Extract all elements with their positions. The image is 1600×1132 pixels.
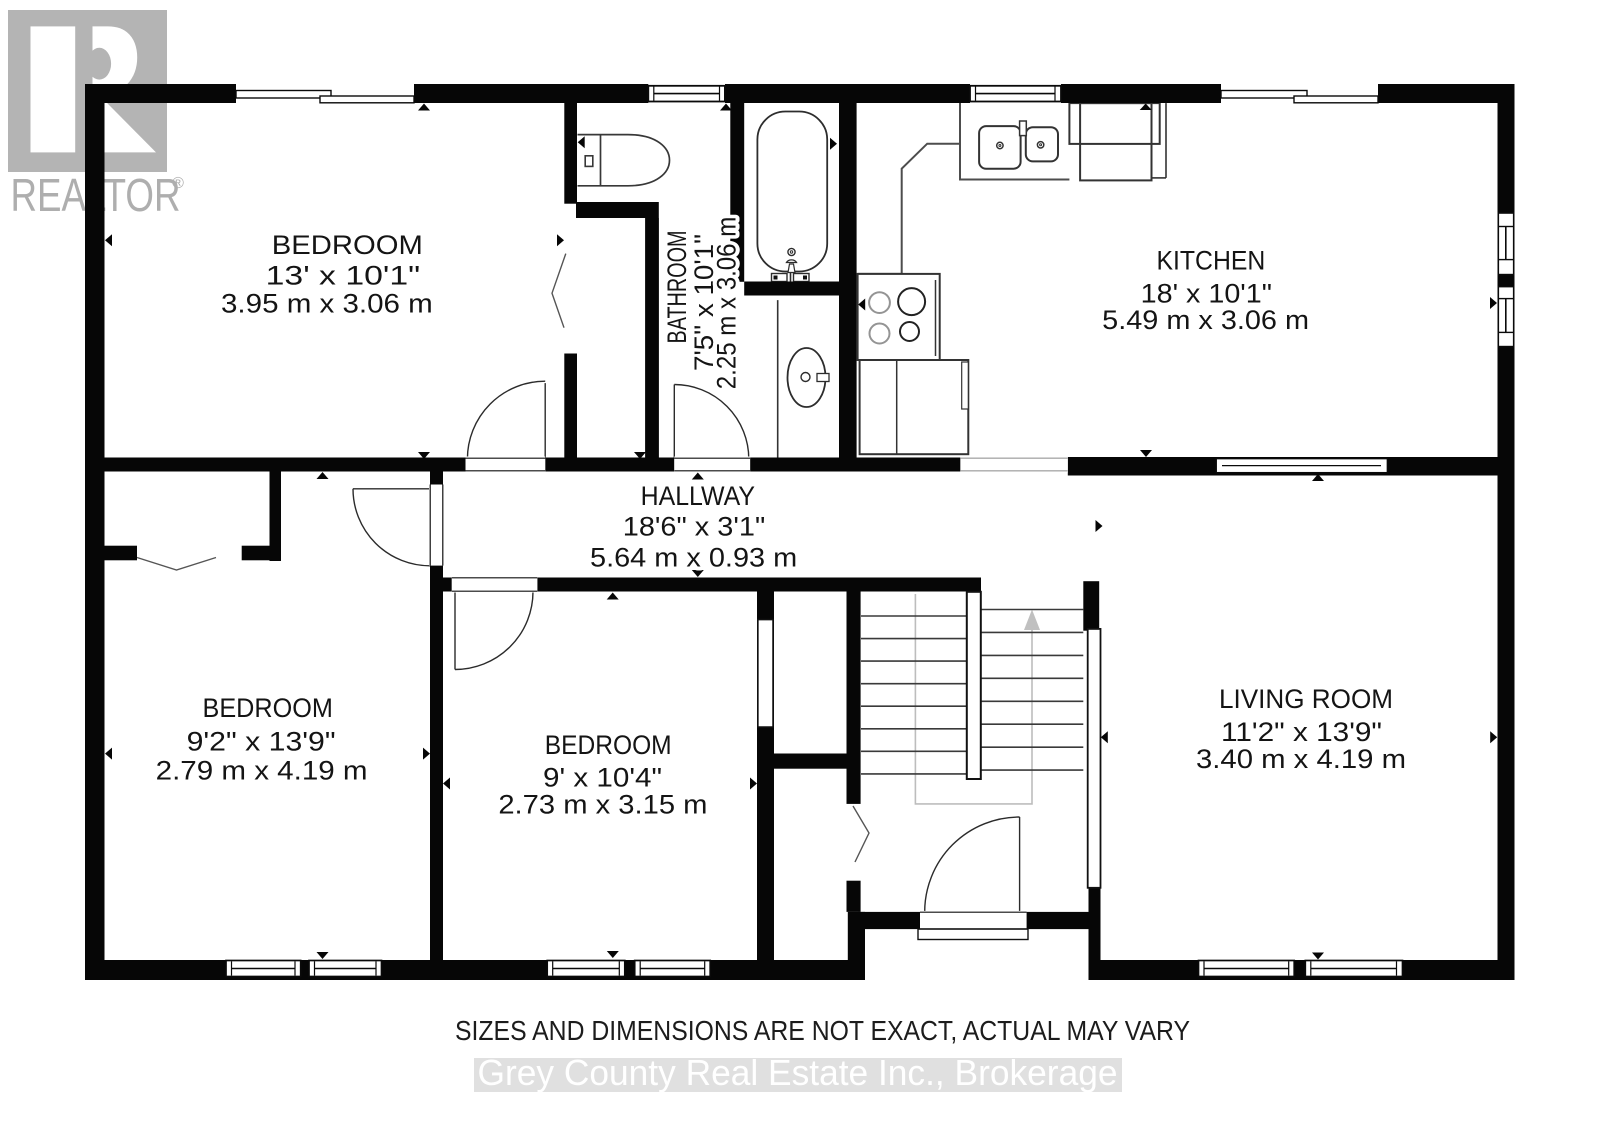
svg-text:SIZES AND DIMENSIONS ARE NOT E: SIZES AND DIMENSIONS ARE NOT EXACT, ACTU…: [455, 1015, 1190, 1046]
svg-text:18'6" x 3'1": 18'6" x 3'1": [623, 512, 766, 542]
svg-text:BEDROOM: BEDROOM: [203, 693, 333, 723]
svg-text:BATHROOM: BATHROOM: [662, 231, 692, 344]
svg-text:18' x 10'1": 18' x 10'1": [1141, 279, 1272, 309]
svg-text:BEDROOM: BEDROOM: [272, 230, 423, 260]
svg-text:5.49 m x 3.06 m: 5.49 m x 3.06 m: [1102, 305, 1309, 335]
svg-text:9' x 10'4": 9' x 10'4": [543, 763, 662, 793]
svg-text:13' x 10'1": 13' x 10'1": [266, 261, 421, 291]
svg-text:2.79 m x 4.19 m: 2.79 m x 4.19 m: [156, 756, 368, 786]
svg-text:HALLWAY: HALLWAY: [641, 481, 755, 511]
svg-text:9'2" x 13'9": 9'2" x 13'9": [187, 727, 336, 757]
svg-text:11'2" x 13'9": 11'2" x 13'9": [1221, 717, 1382, 747]
svg-text:LIVING ROOM: LIVING ROOM: [1219, 684, 1393, 714]
svg-text:2.25 m x 3.06 m: 2.25 m x 3.06 m: [711, 217, 741, 390]
svg-text:Grey County Real Estate Inc.,: Grey County Real Estate Inc., Brokerage: [478, 1052, 1118, 1093]
svg-text:3.40 m x 4.19 m: 3.40 m x 4.19 m: [1196, 744, 1406, 774]
svg-text:5.64 m x 0.93 m: 5.64 m x 0.93 m: [590, 543, 797, 573]
svg-text:®: ®: [172, 175, 184, 192]
svg-text:KITCHEN: KITCHEN: [1157, 246, 1266, 276]
svg-text:3.95 m x 3.06 m: 3.95 m x 3.06 m: [221, 289, 433, 319]
svg-text:2.73 m x 3.15 m: 2.73 m x 3.15 m: [498, 790, 707, 820]
svg-text:BEDROOM: BEDROOM: [545, 730, 672, 760]
